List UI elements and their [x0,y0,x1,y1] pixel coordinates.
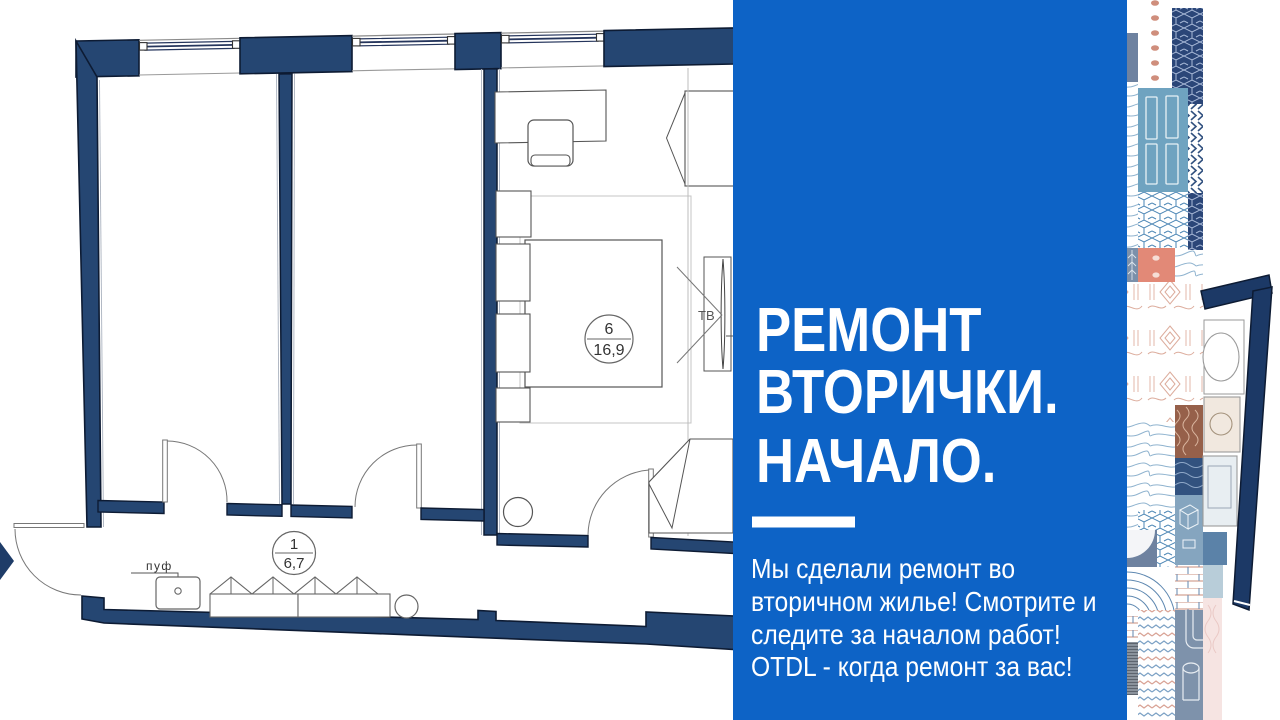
svg-text:пуф: пуф [146,559,173,573]
svg-text:ТВ: ТВ [698,308,715,323]
svg-text:6: 6 [605,321,614,338]
svg-text:6,7: 6,7 [284,555,305,572]
svg-text:1: 1 [290,536,298,553]
svg-text:16,9: 16,9 [593,342,624,359]
